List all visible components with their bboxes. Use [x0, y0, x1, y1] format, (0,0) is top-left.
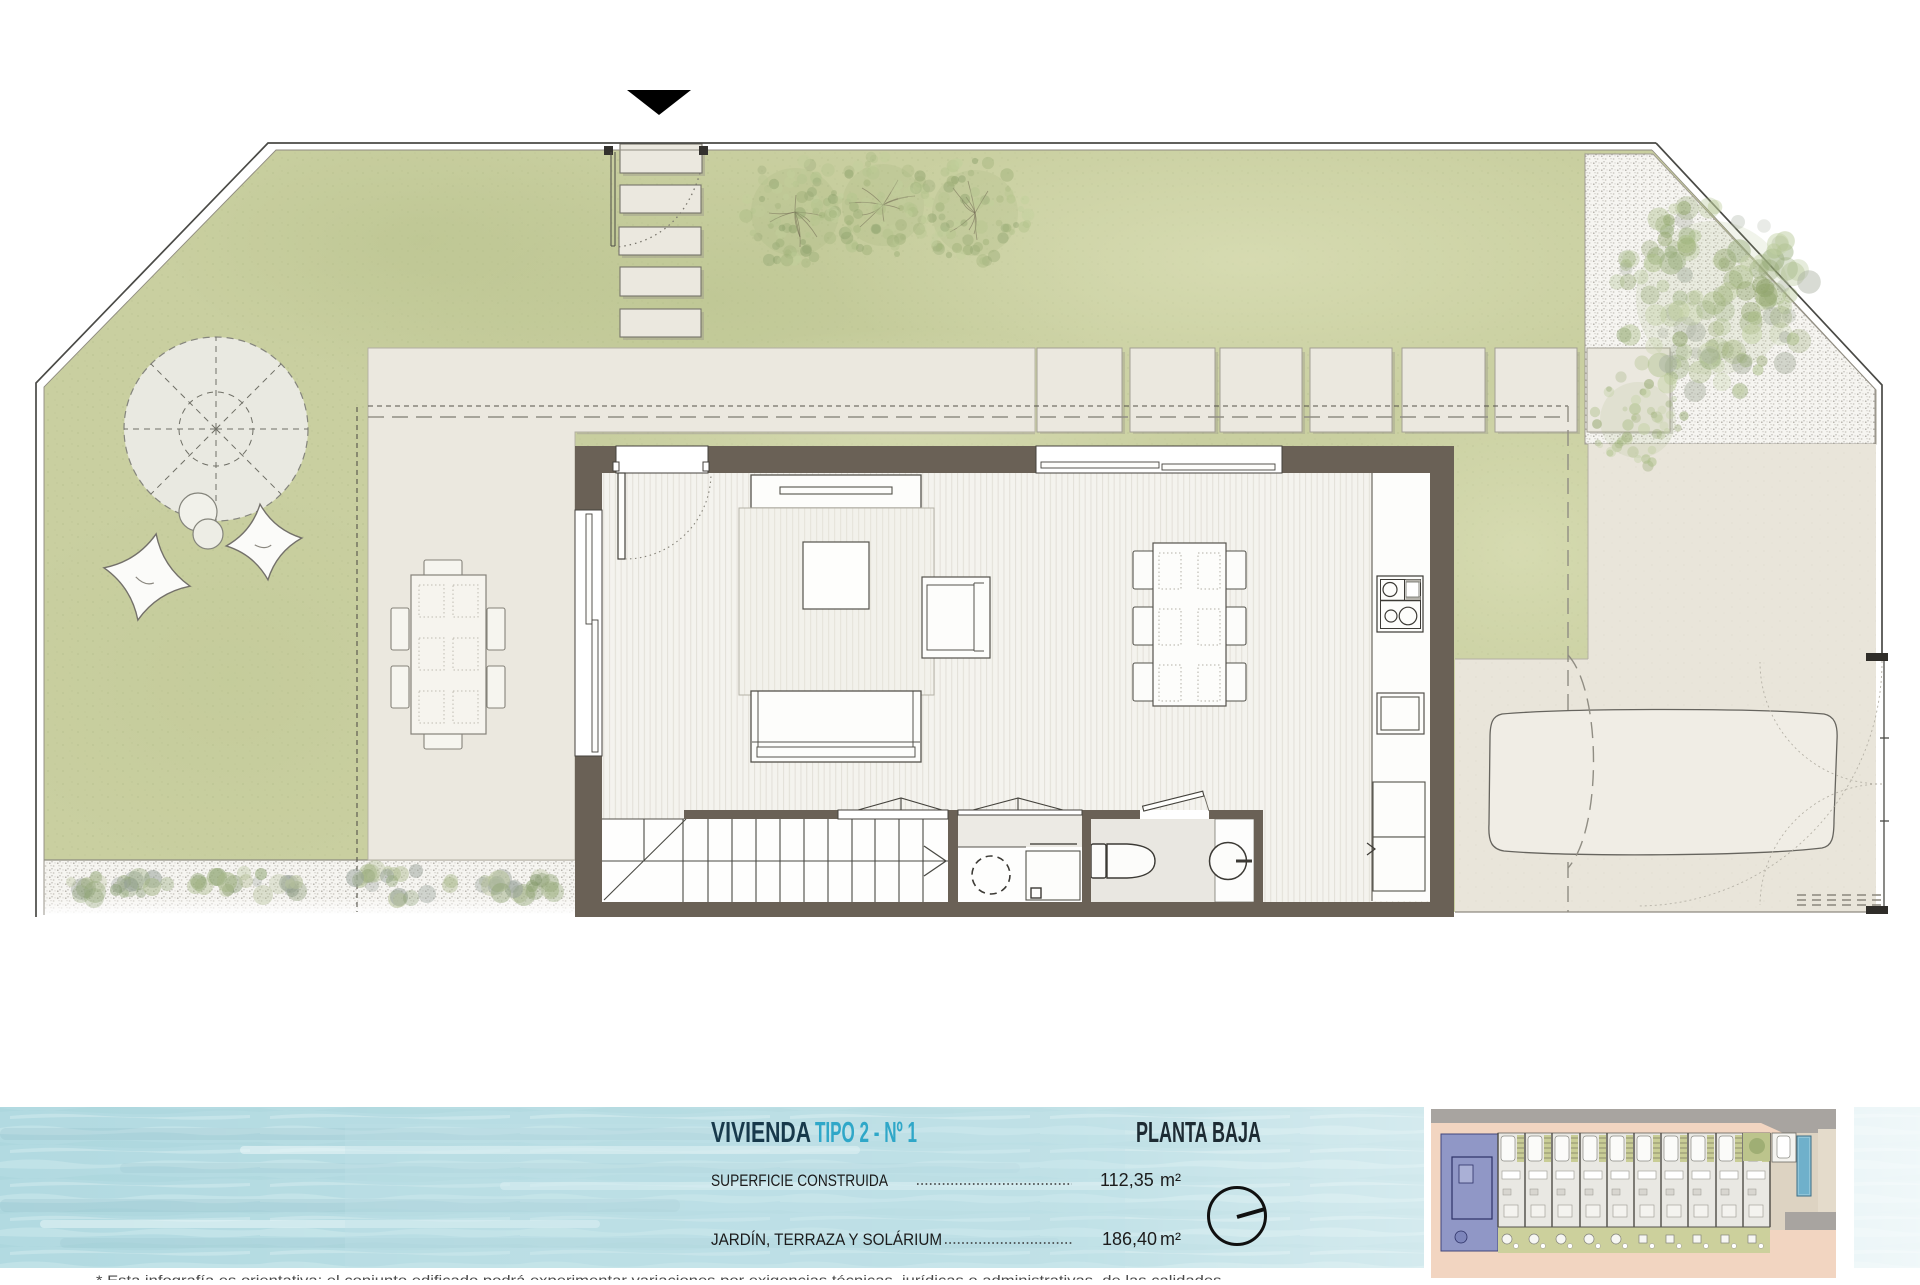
- svg-text:PLANTA BAJA: PLANTA BAJA: [1136, 1117, 1261, 1149]
- svg-text:TIPO 2 - Nº 1: TIPO 2 - Nº 1: [815, 1117, 917, 1149]
- svg-text:JARDÍN, TERRAZA Y SOLÁRIUM: JARDÍN, TERRAZA Y SOLÁRIUM: [711, 1230, 942, 1249]
- svg-text:m²: m²: [1160, 1170, 1181, 1190]
- svg-text:SUPERFICIE CONSTRUIDA: SUPERFICIE CONSTRUIDA: [711, 1172, 888, 1190]
- svg-text:m²: m²: [1160, 1229, 1181, 1249]
- svg-text:* Esta infografía es orientati: * Esta infografía es orientativa; el con…: [96, 1272, 1226, 1280]
- svg-text:112,35: 112,35: [1100, 1170, 1154, 1190]
- svg-text:VIVIENDA: VIVIENDA: [711, 1117, 811, 1149]
- svg-text:186,40: 186,40: [1102, 1229, 1157, 1249]
